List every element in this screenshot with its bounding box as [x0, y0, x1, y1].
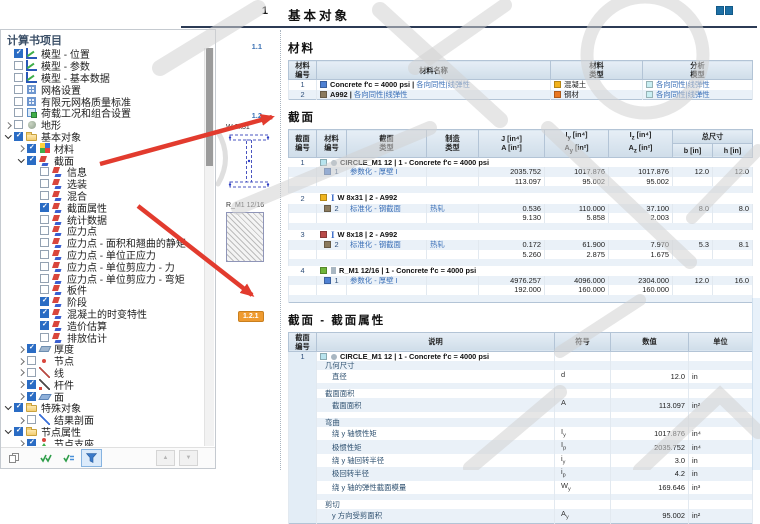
select-all-icon: [40, 453, 52, 464]
tree-item-checkbox[interactable]: [14, 85, 23, 94]
expander-icon[interactable]: [30, 215, 39, 224]
report-navigator-panel: 计算书项目 模型 - 位置 模型 - 参数 模型 - 基本数据: [0, 29, 216, 469]
tree-item-checkbox[interactable]: [14, 427, 23, 436]
material-color-swatch: [324, 241, 331, 248]
tree-item-icon: [52, 178, 63, 189]
section-number: 1.1: [230, 42, 262, 51]
tree-item-icon: [26, 119, 37, 130]
tree-item-checkbox[interactable]: [27, 356, 36, 365]
invert-selection-icon: [63, 453, 75, 464]
thumbnail-label: W 8x31: [226, 124, 250, 131]
tree-item-icon: [52, 273, 63, 284]
copy-icon: [9, 453, 20, 464]
section-shape-icon: [331, 354, 337, 360]
section-color-swatch: [320, 194, 327, 201]
tree-item-checkbox[interactable]: [40, 215, 49, 224]
select-all-button[interactable]: [35, 449, 56, 467]
property-row[interactable]: 几何尺寸: [289, 361, 753, 370]
expander-icon[interactable]: [30, 203, 39, 212]
section-title: 材料: [288, 38, 758, 60]
expander-icon[interactable]: [30, 262, 39, 271]
sections-table: 截面编号 材料编号 截面类型 制造类型 J [in⁴]A [in²] Iy [i…: [288, 129, 753, 303]
materials-table-header: 材料编号 材料名称 材料类型 分析模型: [289, 61, 753, 80]
property-section-title-row[interactable]: 1 CIRCLE_M1 12 | 1 - Concrete f'c = 4000…: [289, 351, 753, 361]
section-shape-icon: [331, 160, 337, 166]
tree-item-icon: [39, 143, 50, 154]
section-values-row2[interactable]: 9.130 5.858 2.003: [289, 213, 753, 223]
expander-icon[interactable]: [30, 238, 39, 247]
section-values-row2[interactable]: 113.097 95.002 95.002: [289, 177, 753, 187]
property-row[interactable]: y 方向受剪面积 Ay 95.002 in²: [289, 509, 753, 523]
tree-item-icon: [39, 343, 50, 354]
tree-item[interactable]: 材料: [2, 142, 203, 154]
tree-item-icon: [26, 107, 37, 118]
thumbnail-label: R_M1 12/16: [226, 202, 264, 209]
printout-report-page: 1 基本对象 1.1 材料 材料编号 材料名称 材料类型 分析模型 1 Conc…: [230, 0, 758, 470]
material-color-swatch: [324, 277, 331, 284]
tree-item-icon: [52, 320, 63, 331]
tree-item-checkbox[interactable]: [14, 132, 23, 141]
expander-icon[interactable]: [17, 344, 26, 353]
expander-icon[interactable]: [30, 179, 39, 188]
tree-item[interactable]: 信息: [2, 166, 203, 178]
tree-item-icon: [39, 391, 50, 402]
tree-item[interactable]: 板件: [2, 284, 203, 296]
tree-item[interactable]: 杆件: [2, 378, 203, 390]
expander-icon[interactable]: [4, 61, 13, 70]
expander-icon[interactable]: [30, 333, 39, 342]
tree-item-checkbox[interactable]: [14, 61, 23, 70]
tree-item-checkbox[interactable]: [40, 333, 49, 342]
section-title: 截面 - 截面属性: [288, 310, 758, 332]
tree-item[interactable]: 截面: [2, 154, 203, 166]
tree-item-checkbox[interactable]: [40, 274, 49, 283]
section-sections: 1.2 截面 截面编号 材料编号 截面类型 制造类型 J [in⁴]A [in²…: [230, 107, 758, 303]
tree-item[interactable]: 结果剖面: [2, 414, 203, 426]
tree-item[interactable]: 荷载工况和组合设置: [2, 107, 203, 119]
expander-icon[interactable]: [30, 309, 39, 318]
material-row[interactable]: 1 Concrete f'c = 4000 psi | 各向同性|线弹性 混凝土…: [289, 80, 753, 90]
section-values-row[interactable]: 2 标准化 - 钢截面 热轧 0.536 110.000 37.100 8.0 …: [289, 204, 753, 214]
tree-item[interactable]: 基本对象: [2, 131, 203, 143]
property-row[interactable]: 剪切: [289, 500, 753, 509]
tree-item-checkbox[interactable]: [14, 73, 23, 82]
tree-item-checkbox[interactable]: [27, 368, 36, 377]
property-row[interactable]: 绕 y 轴的弹性截面模量 Wy 169.646 in³: [289, 481, 753, 494]
expander-icon[interactable]: [30, 250, 39, 259]
tree-item-icon: [26, 72, 37, 83]
tree-item-icon: [52, 284, 63, 295]
material-type-swatch: [554, 81, 561, 88]
tree-item-icon: [52, 214, 63, 225]
section-group-row[interactable]: 1 CIRCLE_M1 12 | 1 - Concrete f'c = 4000…: [289, 157, 753, 167]
tree-item-checkbox[interactable]: [40, 179, 49, 188]
tree-item-icon: [39, 379, 50, 390]
filter-button[interactable]: [81, 449, 102, 467]
material-type-swatch: [554, 91, 561, 98]
tree-item-icon: [52, 296, 63, 307]
section-title: 截面: [288, 107, 758, 129]
tree-item[interactable]: 选装: [2, 178, 203, 190]
expander-icon[interactable]: [30, 285, 39, 294]
rect-section-sketch: [226, 212, 264, 262]
tree-item-icon: [52, 202, 63, 213]
app-window: { "sidebar": { "title": "计算书项目", "items"…: [0, 0, 760, 470]
chapter-title: 基本对象: [288, 9, 350, 23]
section-properties-table: 截面编号 说明 符号 数值 单位 1 CIRCLE_M1 12 | 1 - Co…: [288, 332, 753, 524]
analysis-model-swatch: [646, 81, 653, 88]
expander-icon[interactable]: [17, 356, 26, 365]
tree-item[interactable]: 模型 - 基本数据: [2, 72, 203, 84]
material-color-swatch: [324, 168, 331, 175]
property-row[interactable]: 绕 y 轴惯性矩 Iy 1017.876 in⁴: [289, 427, 753, 440]
scroll-down-button[interactable]: ▼: [179, 450, 198, 466]
tree-item-icon: [26, 48, 37, 59]
tree-item-icon: [39, 367, 50, 378]
property-row[interactable]: 绕 y 轴回转半径 iy 3.0 in: [289, 454, 753, 467]
tree-item-checkbox[interactable]: [27, 380, 36, 389]
analysis-model-swatch: [646, 91, 653, 98]
tree-item-icon: [26, 60, 37, 71]
section-color-swatch: [320, 267, 327, 274]
expander-icon[interactable]: [4, 427, 13, 436]
section-shape-icon: [331, 231, 335, 241]
property-row[interactable]: 极惯性矩 Ip 2035.752 in⁴: [289, 440, 753, 453]
property-row[interactable]: 截面面积 A 113.097 in²: [289, 398, 753, 411]
window-icon-square: [725, 6, 733, 15]
section-values-row2[interactable]: 5.260 2.875 1.675: [289, 250, 753, 260]
spacer-row: [289, 259, 753, 266]
spacer-row: [289, 223, 753, 230]
tree-item-checkbox[interactable]: [14, 97, 23, 106]
expander-icon[interactable]: [30, 274, 39, 283]
tree-item-checkbox[interactable]: [40, 321, 49, 330]
tree-item-icon: [26, 96, 37, 107]
property-row[interactable]: 极回转半径 ip 4.2 in: [289, 467, 753, 480]
expander-icon[interactable]: [30, 321, 39, 330]
expander-icon[interactable]: [17, 156, 26, 165]
tree-item-icon: [26, 402, 37, 413]
chapter-heading: 1 基本对象: [230, 0, 758, 26]
tree-item-icon: [52, 332, 63, 343]
tree-item[interactable]: 应力点 - 单位剪应力 - 弯矩: [2, 272, 203, 284]
tree-item-checkbox[interactable]: [27, 144, 36, 153]
expander-icon[interactable]: [4, 85, 13, 94]
tree-item[interactable]: 厚度: [2, 343, 203, 355]
tree-item-checkbox[interactable]: [14, 108, 23, 117]
section-group-row[interactable]: 4 R_M1 12/16 | 1 - Concrete f'c = 4000 p…: [289, 266, 753, 276]
tree-item[interactable]: 模型 - 位置: [2, 48, 203, 60]
properties-table-header: 截面编号 说明 符号 数值 单位: [289, 332, 753, 351]
tree-item[interactable]: 节点: [2, 355, 203, 367]
ibeam-sketch: [226, 131, 272, 193]
section-thumbnail-w8x31: W 8x31: [226, 124, 272, 195]
property-row[interactable]: 弯曲: [289, 418, 753, 427]
material-color-swatch: [324, 205, 331, 212]
section-color-swatch: [320, 159, 327, 166]
tree-item-checkbox[interactable]: [40, 262, 49, 271]
tree-item-icon: [26, 426, 37, 437]
expander-icon[interactable]: [17, 144, 26, 153]
expander-icon[interactable]: [17, 380, 26, 389]
window-icon-square: [716, 6, 724, 15]
section-thumbnail-rm1: R_M1 12/16: [226, 202, 264, 262]
expander-icon[interactable]: [17, 368, 26, 377]
tree-item[interactable]: 面: [2, 390, 203, 402]
spacer-row: [289, 186, 753, 193]
tree-item-icon: [52, 308, 63, 319]
tree-item-icon: [52, 190, 63, 201]
tree-item-icon: [39, 438, 50, 446]
tree-item-checkbox[interactable]: [40, 203, 49, 212]
tree-item-checkbox[interactable]: [27, 392, 36, 401]
material-color-swatch: [320, 81, 327, 88]
expander-icon[interactable]: [4, 97, 13, 106]
tree-item-icon: [39, 414, 50, 425]
section-values-row[interactable]: 1 参数化 - 厚壁 I 2035.752 1017.876 1017.876 …: [289, 167, 753, 177]
panel-title: 计算书项目: [1, 30, 215, 49]
tree-scrollbar-thumb[interactable]: [206, 48, 213, 166]
report-items-tree[interactable]: 模型 - 位置 模型 - 参数 模型 - 基本数据 网格设置: [2, 48, 203, 446]
copy-button[interactable]: [4, 449, 25, 467]
tree-item-icon: [52, 249, 63, 260]
property-row[interactable]: 截面面积: [289, 389, 753, 398]
material-color-swatch: [320, 91, 327, 98]
expander-icon[interactable]: [4, 403, 13, 412]
tree-item-checkbox[interactable]: [40, 167, 49, 176]
sections-table-header: 截面编号 材料编号 截面类型 制造类型 J [in⁴]A [in²] Iy [i…: [289, 130, 753, 158]
section-properties: 1.2.1 截面 - 截面属性 截面编号 说明 符号 数值 单位 1 CIRCL…: [230, 310, 758, 524]
expander-icon[interactable]: [30, 191, 39, 200]
spacer-row: [289, 295, 753, 303]
tree-item-icon: [39, 355, 50, 366]
tree-item-checkbox[interactable]: [40, 226, 49, 235]
section-values-row[interactable]: 1 参数化 - 厚壁 I 4976.257 4096.000 2304.000 …: [289, 276, 753, 286]
expander-icon[interactable]: [30, 226, 39, 235]
tree-item-checkbox[interactable]: [40, 285, 49, 294]
tree-item-icon: [52, 225, 63, 236]
section-color-swatch: [320, 353, 327, 360]
tree-item-checkbox[interactable]: [27, 156, 36, 165]
tree-item-checkbox[interactable]: [40, 297, 49, 306]
tree-item[interactable]: 线: [2, 367, 203, 379]
page-scrollbar[interactable]: [752, 298, 760, 470]
tree-item-label: 节点支座: [54, 436, 94, 446]
property-row[interactable]: 直径 d 12.0 in: [289, 370, 753, 383]
tree-item[interactable]: 节点支座: [2, 437, 203, 446]
section-group-row[interactable]: 3 W 8x18 | 2 - A992: [289, 230, 753, 241]
section-group-row[interactable]: 2 W 8x31 | 2 - A992: [289, 193, 753, 204]
expander-icon[interactable]: [4, 132, 13, 141]
tree-item-checkbox[interactable]: [40, 238, 49, 247]
tree-item[interactable]: 排放估计: [2, 331, 203, 343]
panel-toolbar: ▲ ▼: [1, 447, 215, 468]
tree-item-icon: [52, 261, 63, 272]
tree-item-checkbox[interactable]: [27, 415, 36, 424]
tree-item[interactable]: 节点属性: [2, 426, 203, 438]
invert-selection-button[interactable]: [58, 449, 79, 467]
tree-scrollbar[interactable]: [204, 48, 214, 446]
tree-item-checkbox[interactable]: [14, 120, 23, 129]
tree-item-checkbox[interactable]: [14, 49, 23, 58]
scroll-up-button[interactable]: ▲: [156, 450, 175, 466]
section-values-row[interactable]: 2 标准化 - 钢截面 热轧 0.172 61.900 7.970 5.3 8.…: [289, 240, 753, 250]
tree-item[interactable]: 统计数据: [2, 213, 203, 225]
expander-icon[interactable]: [30, 167, 39, 176]
expander-icon[interactable]: [17, 415, 26, 424]
section-number-badge: 1.2.1: [238, 311, 264, 322]
tree-item[interactable]: 地形: [2, 119, 203, 131]
section-materials: 1.1 材料 材料编号 材料名称 材料类型 分析模型 1 Concrete f'…: [230, 38, 758, 100]
tree-item-checkbox[interactable]: [40, 191, 49, 200]
tree-item-checkbox[interactable]: [40, 250, 49, 259]
expander-icon[interactable]: [17, 439, 26, 446]
section-values-row2[interactable]: 192.000 160.000 160.000: [289, 285, 753, 295]
expander-icon[interactable]: [30, 297, 39, 306]
section-number: 1.2: [230, 111, 262, 120]
tree-item-checkbox[interactable]: [27, 439, 36, 446]
tree-item-checkbox[interactable]: [14, 403, 23, 412]
tree-item-checkbox[interactable]: [40, 309, 49, 318]
tree-item-icon: [26, 84, 37, 95]
section-color-swatch: [320, 231, 327, 238]
expander-icon[interactable]: [4, 73, 13, 82]
expander-icon[interactable]: [17, 392, 26, 401]
report-window-icon[interactable]: [716, 6, 733, 15]
expander-icon[interactable]: [4, 108, 13, 117]
tree-item-icon: [26, 131, 37, 142]
materials-table: 材料编号 材料名称 材料类型 分析模型 1 Concrete f'c = 400…: [288, 60, 753, 100]
tree-item[interactable]: 特殊对象: [2, 402, 203, 414]
material-row[interactable]: 2 A992 | 各向同性|线弹性 钢材 各向同性|线弹性: [289, 90, 753, 100]
filter-icon: [86, 453, 97, 464]
section-shape-icon: [331, 267, 336, 274]
expander-icon[interactable]: [4, 49, 13, 58]
tree-item-checkbox[interactable]: [27, 344, 36, 353]
tree-item-icon: [39, 155, 50, 166]
section-shape-icon: [331, 194, 335, 204]
tree-item-icon: [52, 237, 63, 248]
tree-item-icon: [52, 166, 63, 177]
chapter-number: 1: [230, 5, 268, 17]
expander-icon[interactable]: [4, 120, 13, 129]
